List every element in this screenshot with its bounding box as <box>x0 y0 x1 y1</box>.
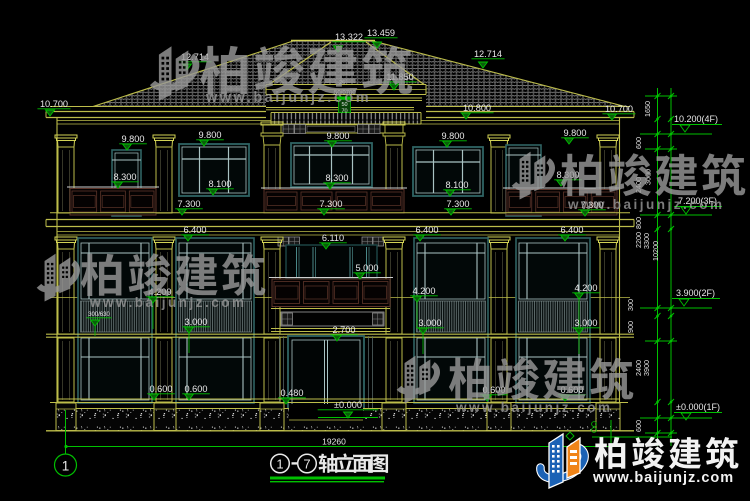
svg-text:9.800: 9.800 <box>442 131 465 141</box>
svg-text:3900: 3900 <box>642 360 651 376</box>
svg-text:8.300: 8.300 <box>326 173 349 183</box>
svg-text:8.100: 8.100 <box>446 180 469 190</box>
svg-text:10.700: 10.700 <box>40 99 68 109</box>
svg-text:800: 800 <box>634 217 643 229</box>
svg-text:6.110: 6.110 <box>322 233 344 243</box>
svg-text:9.800: 9.800 <box>564 128 587 138</box>
svg-text:3.900(2F): 3.900(2F) <box>676 288 715 298</box>
svg-text:±0.000(1F): ±0.000(1F) <box>676 402 720 412</box>
svg-text:6.400: 6.400 <box>184 225 207 235</box>
svg-text:www.baijunjz.com: www.baijunjz.com <box>89 295 247 310</box>
svg-text:300/630: 300/630 <box>88 312 110 318</box>
svg-text:0.600: 0.600 <box>150 384 173 394</box>
svg-text:70: 70 <box>341 109 347 115</box>
svg-text:3.000: 3.000 <box>575 318 598 328</box>
svg-text:10.800: 10.800 <box>463 103 491 113</box>
svg-text:0.480: 0.480 <box>281 388 304 398</box>
svg-text:2.700: 2.700 <box>333 325 356 335</box>
svg-text:3.000: 3.000 <box>185 317 208 327</box>
svg-text:6.400: 6.400 <box>561 225 584 235</box>
svg-text:10.700: 10.700 <box>605 104 633 114</box>
svg-text:0.600: 0.600 <box>185 384 208 394</box>
svg-text:8.100: 8.100 <box>209 179 232 189</box>
svg-text:1: 1 <box>276 457 283 472</box>
svg-text:19260: 19260 <box>322 437 346 447</box>
svg-text:3300: 3300 <box>642 233 651 249</box>
svg-text:300: 300 <box>626 299 635 311</box>
svg-text:13.322: 13.322 <box>335 32 363 42</box>
svg-text:600: 600 <box>634 137 643 149</box>
svg-text:7.300: 7.300 <box>447 199 470 209</box>
svg-text:900: 900 <box>626 321 635 333</box>
svg-text:4.200: 4.200 <box>413 286 436 296</box>
svg-text:1: 1 <box>62 459 70 474</box>
svg-text:8.300: 8.300 <box>114 172 137 182</box>
svg-text:6.400: 6.400 <box>416 225 439 235</box>
svg-text:7.300: 7.300 <box>320 199 343 209</box>
svg-text:12.714: 12.714 <box>474 49 502 59</box>
svg-text:www.baijunjz.com: www.baijunjz.com <box>592 470 734 486</box>
svg-text:7: 7 <box>303 457 310 472</box>
svg-text:www.baijunjz.com: www.baijunjz.com <box>455 400 613 415</box>
svg-text:7.300: 7.300 <box>178 199 201 209</box>
svg-text:5.000: 5.000 <box>356 263 379 273</box>
svg-text:www.baijunjz.com: www.baijunjz.com <box>205 90 371 106</box>
svg-text:10.200(4F): 10.200(4F) <box>674 114 718 124</box>
svg-text:10200: 10200 <box>651 241 660 261</box>
svg-text:3.000: 3.000 <box>419 318 442 328</box>
svg-text:9.800: 9.800 <box>122 134 145 144</box>
svg-text:13.459: 13.459 <box>367 28 395 38</box>
svg-text:9.800: 9.800 <box>199 130 222 140</box>
svg-text:4.200: 4.200 <box>575 283 598 293</box>
svg-text:1650: 1650 <box>643 101 652 117</box>
svg-text:600: 600 <box>634 420 643 432</box>
svg-text:www.baijunjz.com: www.baijunjz.com <box>567 197 725 212</box>
svg-text:9.800: 9.800 <box>327 131 350 141</box>
svg-text:±0.000: ±0.000 <box>334 400 362 410</box>
